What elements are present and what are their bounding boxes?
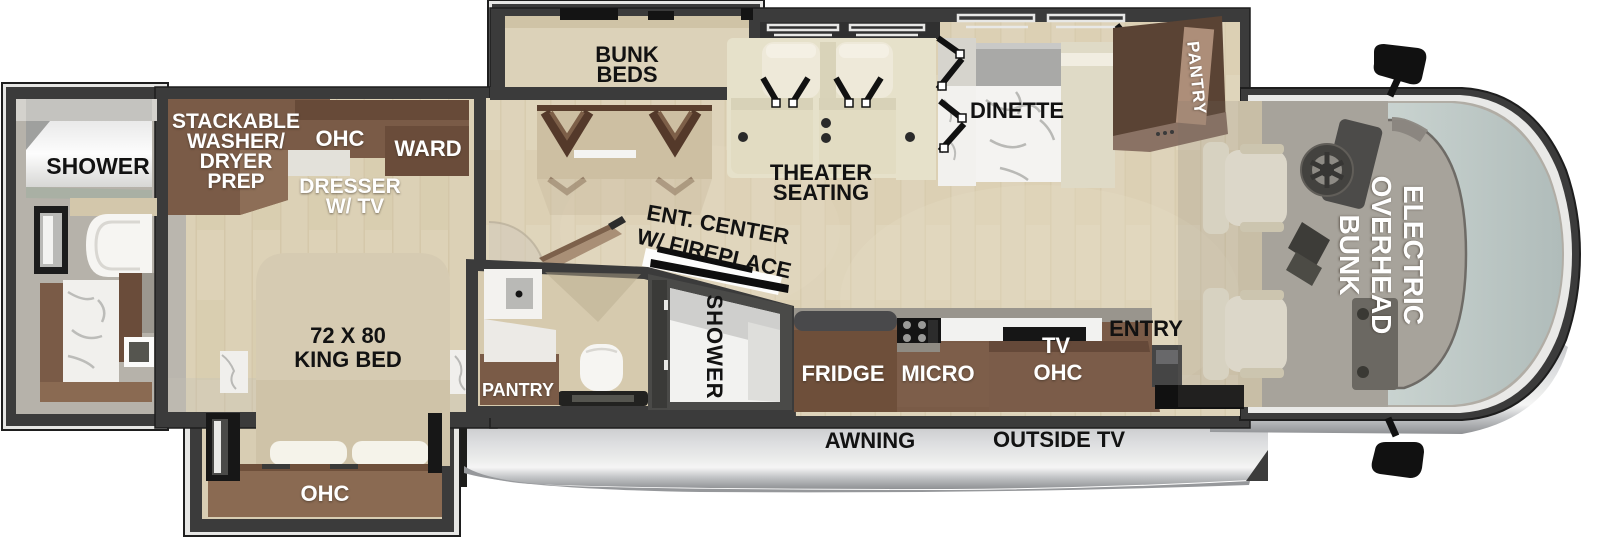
svg-text:DINETTE: DINETTE (970, 98, 1064, 123)
svg-text:WARD: WARD (394, 136, 461, 161)
svg-text:MICRO: MICRO (901, 361, 974, 386)
svg-text:AWNING: AWNING (825, 428, 915, 453)
svg-text:ENTRY: ENTRY (1109, 316, 1183, 341)
svg-text:OHC: OHC (316, 126, 365, 151)
svg-text:OVERHEAD: OVERHEAD (1366, 176, 1397, 335)
svg-text:72 X 80: 72 X 80 (310, 323, 386, 348)
svg-text:BEDS: BEDS (596, 62, 657, 87)
svg-text:FRIDGE: FRIDGE (801, 361, 884, 386)
svg-text:KING BED: KING BED (294, 347, 402, 372)
svg-text:SHOWER: SHOWER (702, 295, 727, 400)
svg-text:ELECTRIC: ELECTRIC (1398, 185, 1429, 325)
svg-text:OUTSIDE TV: OUTSIDE TV (993, 427, 1125, 452)
svg-text:OHC: OHC (1034, 360, 1083, 385)
svg-text:PREP: PREP (207, 170, 264, 193)
svg-text:TV: TV (1042, 333, 1070, 358)
svg-text:OHC: OHC (301, 481, 350, 506)
svg-text:SHOWER: SHOWER (46, 153, 150, 179)
svg-text:W/ TV: W/ TV (326, 195, 384, 218)
svg-text:PANTRY: PANTRY (482, 380, 554, 400)
svg-text:BUNK: BUNK (1334, 215, 1365, 296)
svg-text:SEATING: SEATING (773, 180, 869, 205)
